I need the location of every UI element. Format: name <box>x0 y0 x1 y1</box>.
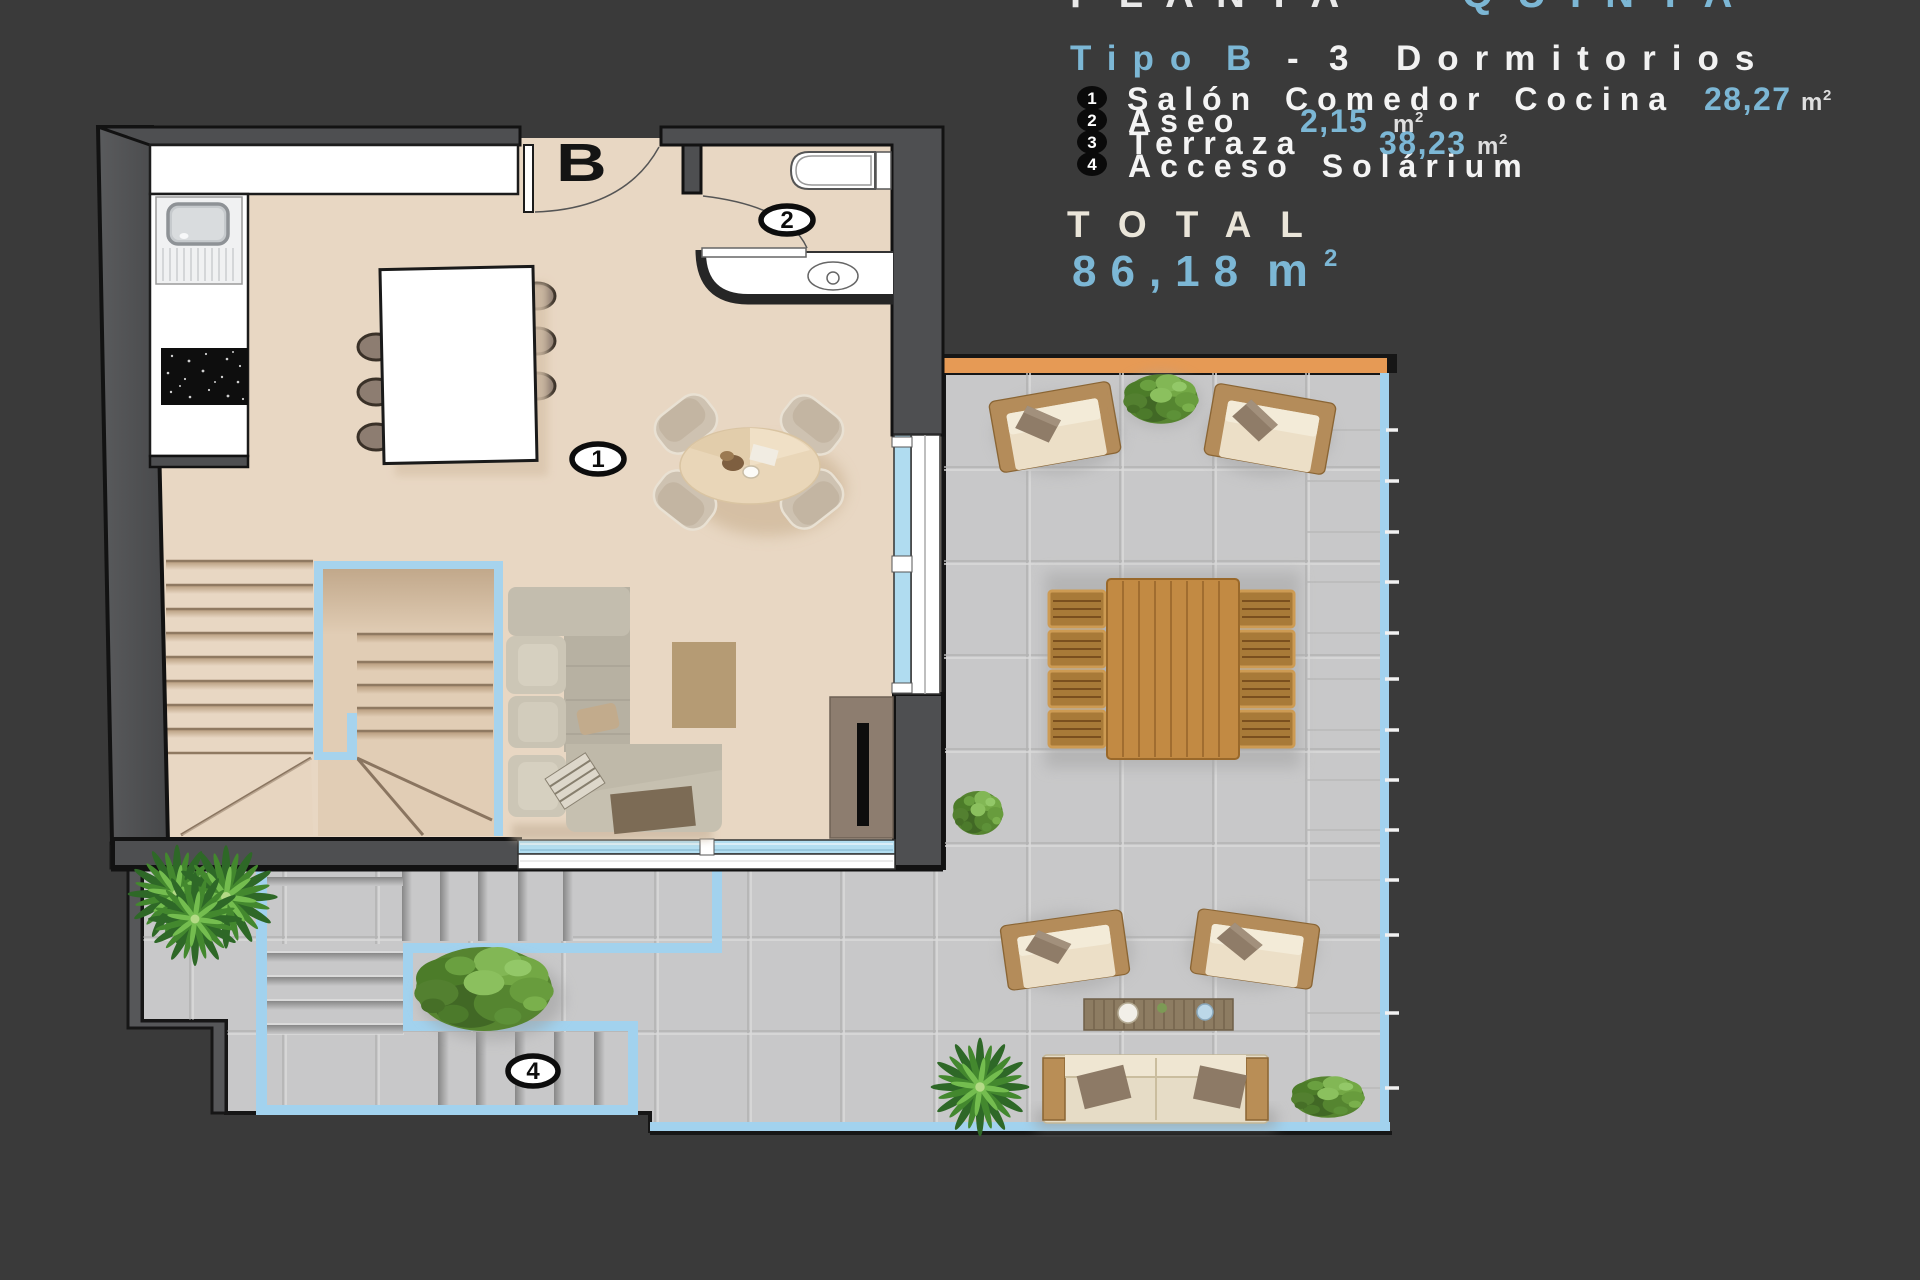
svg-text:Tipo: Tipo <box>1070 39 1207 78</box>
svg-text:2: 2 <box>1499 131 1507 148</box>
svg-text:2: 2 <box>1324 245 1337 272</box>
svg-text:m: m <box>1267 244 1308 296</box>
svg-text:m: m <box>1801 89 1822 116</box>
svg-text:3: 3 <box>1087 133 1096 152</box>
svg-text:28,27: 28,27 <box>1704 81 1792 117</box>
svg-text:B: B <box>1226 39 1267 78</box>
svg-text:PLANTA: PLANTA <box>1070 0 1361 16</box>
svg-text:2: 2 <box>1823 87 1831 104</box>
svg-text:Dormitorios: Dormitorios <box>1396 39 1770 78</box>
svg-text:B: B <box>556 133 607 193</box>
svg-text:m: m <box>1477 133 1498 160</box>
svg-text:1: 1 <box>1087 89 1096 108</box>
svg-text:-: - <box>1287 39 1315 78</box>
svg-text:2,15: 2,15 <box>1300 103 1368 139</box>
svg-text:4: 4 <box>526 1058 540 1085</box>
svg-text:Acceso Solárium: Acceso Solárium <box>1128 148 1531 184</box>
svg-text:m: m <box>1393 111 1414 138</box>
svg-text:2: 2 <box>1087 111 1096 130</box>
svg-text:1: 1 <box>591 446 604 473</box>
svg-text:86,18: 86,18 <box>1072 247 1252 296</box>
svg-text:2: 2 <box>1415 109 1423 126</box>
svg-text:TOTAL: TOTAL <box>1067 204 1332 245</box>
svg-text:2: 2 <box>780 207 793 234</box>
svg-text:QUINTA: QUINTA <box>1462 0 1756 16</box>
svg-text:3: 3 <box>1329 39 1364 78</box>
svg-text:4: 4 <box>1087 155 1097 174</box>
